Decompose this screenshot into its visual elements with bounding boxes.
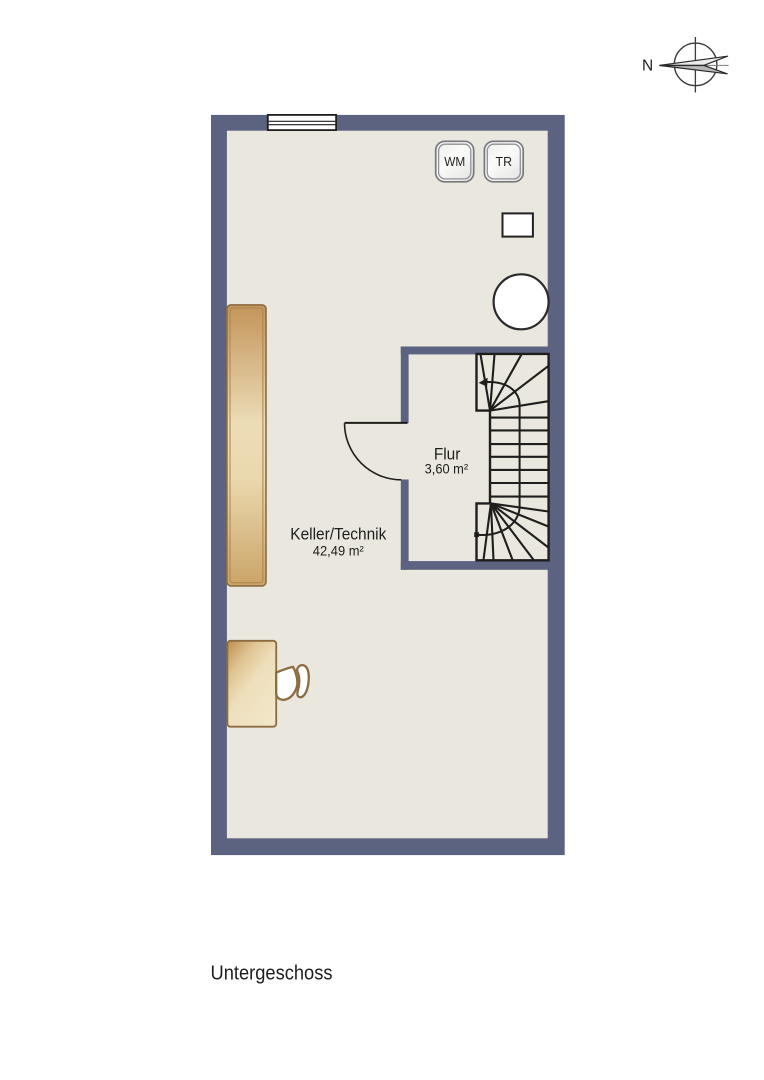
svg-text:N: N (642, 58, 653, 75)
svg-text:TR: TR (496, 154, 513, 169)
svg-text:Keller/Technik: Keller/Technik (290, 526, 387, 544)
svg-text:3,60 m²: 3,60 m² (425, 461, 469, 476)
svg-text:Untergeschoss: Untergeschoss (211, 963, 333, 985)
svg-text:42,49 m²: 42,49 m² (313, 543, 364, 558)
svg-text:WM: WM (444, 154, 465, 169)
